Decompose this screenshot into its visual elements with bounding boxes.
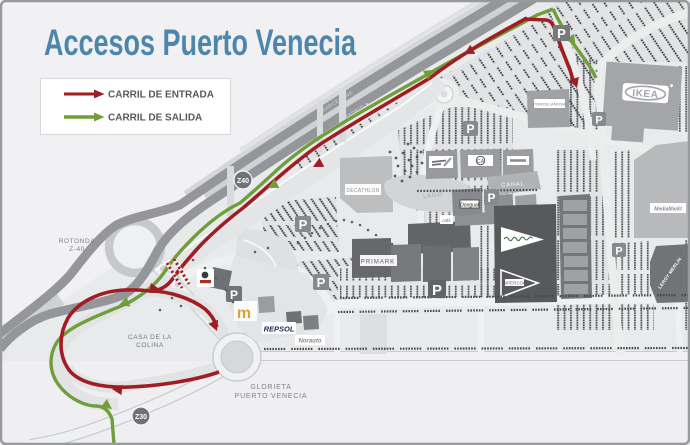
svg-text:CARRIL DE SALIDA: CARRIL DE SALIDA xyxy=(108,113,202,124)
svg-text:Norauto: Norauto xyxy=(299,339,322,345)
svg-text:CASA DE LA: CASA DE LA xyxy=(128,334,172,341)
svg-text:DECATHLON: DECATHLON xyxy=(346,188,379,194)
svg-text:P: P xyxy=(487,191,495,205)
svg-text:IKEA: IKEA xyxy=(632,88,659,101)
svg-text:COLINA: COLINA xyxy=(136,342,164,349)
svg-text:P: P xyxy=(299,217,308,232)
svg-text:Accesos Puerto Venecia: Accesos Puerto Venecia xyxy=(44,22,356,63)
svg-text:REPSOL: REPSOL xyxy=(264,325,295,334)
svg-text:P: P xyxy=(466,122,474,136)
svg-text:P: P xyxy=(432,282,442,299)
svg-text:Z30: Z30 xyxy=(135,414,147,421)
svg-text:P: P xyxy=(615,246,622,258)
svg-text:m: m xyxy=(237,305,251,322)
svg-text:P: P xyxy=(317,275,326,290)
svg-text:café: café xyxy=(442,218,451,223)
svg-text:GLORIETA: GLORIETA xyxy=(250,384,291,391)
svg-text:CA: CA xyxy=(477,159,485,165)
svg-text:PRIMARK: PRIMARK xyxy=(361,260,395,266)
svg-text:CARRIL DE ENTRADA: CARRIL DE ENTRADA xyxy=(108,90,214,101)
svg-text:MediaMarkt: MediaMarkt xyxy=(654,207,682,213)
svg-text:P: P xyxy=(230,288,238,302)
svg-text:P: P xyxy=(557,26,566,41)
svg-text:Z-40: Z-40 xyxy=(69,246,85,253)
svg-text:ROTONDA: ROTONDA xyxy=(59,238,96,245)
svg-text:Z40: Z40 xyxy=(237,178,249,185)
svg-text:PUERTO VENECIA: PUERTO VENECIA xyxy=(235,393,308,400)
svg-text:HIPERCOR: HIPERCOR xyxy=(503,281,527,286)
svg-text:PORCELANOSA: PORCELANOSA xyxy=(533,102,566,107)
svg-text:P: P xyxy=(595,115,602,127)
svg-text:Dongual: Dongual xyxy=(460,203,480,209)
